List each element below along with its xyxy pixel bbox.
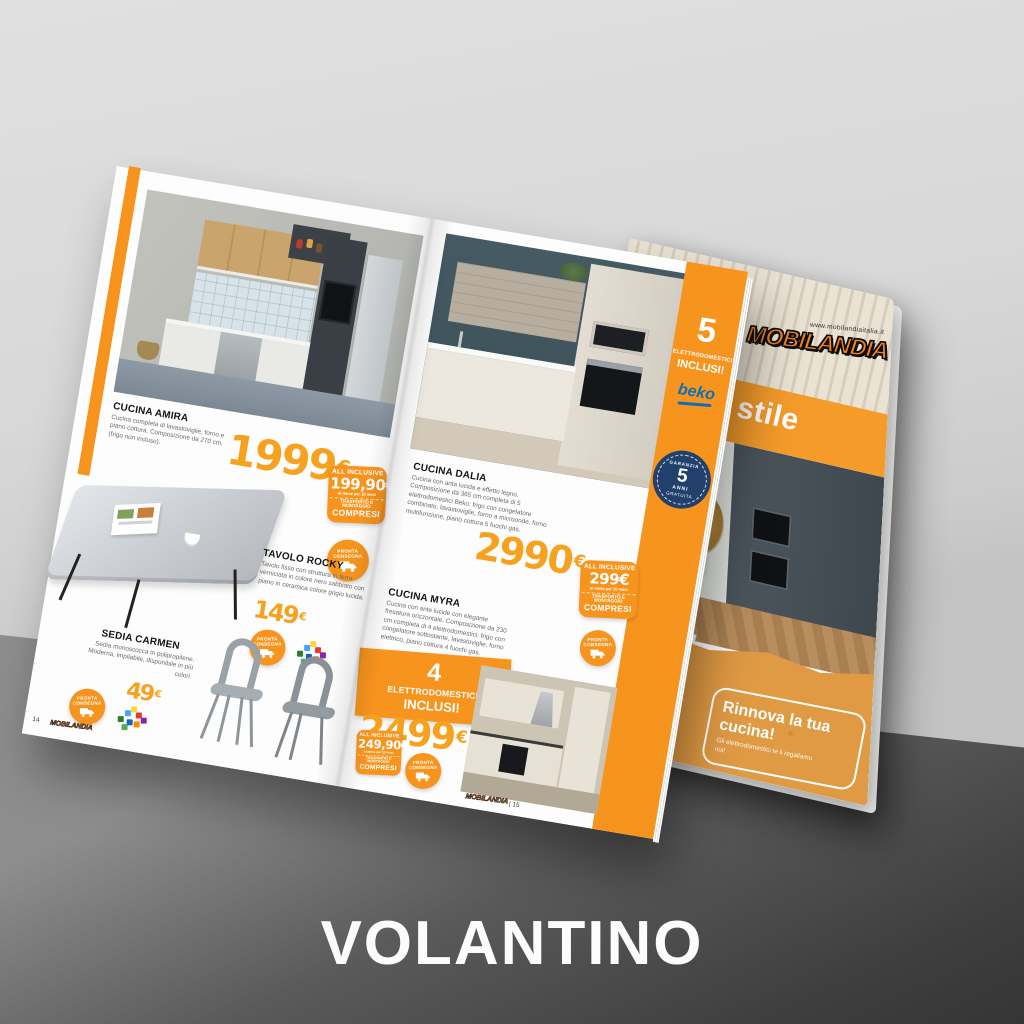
magazine-on-table bbox=[111, 503, 161, 535]
cucina-dalia-photo bbox=[410, 233, 685, 488]
myra-oven-icon bbox=[498, 744, 528, 776]
page-number-right: | 15 bbox=[508, 801, 520, 810]
cucina-myra-photo bbox=[460, 665, 617, 814]
beko-logo: beko bbox=[677, 382, 716, 404]
table-top bbox=[44, 485, 287, 585]
tavolo-rocky-photo bbox=[31, 452, 293, 657]
open-catalog-spread: CUCINA AMIRA Cucina completa di lavastov… bbox=[22, 166, 748, 839]
amira-basket bbox=[135, 340, 160, 361]
sidebar-count: 5 bbox=[695, 312, 719, 349]
cucina-amira-photo bbox=[114, 189, 424, 437]
mockup-caption: VOLANTINO bbox=[0, 908, 1024, 979]
price-dalia: 2990€ bbox=[472, 527, 588, 583]
sedia-carmen-photo bbox=[187, 632, 359, 771]
truck-icon bbox=[79, 707, 95, 718]
all-inclusive-badge-amira: ALL INCLUSIVE 199,90€ al mese per 10 mes… bbox=[327, 465, 387, 524]
amira-oven-icon bbox=[318, 280, 356, 325]
pronta-consegna-badge: PRONTA CONSEGNA bbox=[405, 753, 441, 789]
all-inclusive-badge-dalia: ALL INCLUSIVE 299€ al mese per 10 mesi T… bbox=[579, 560, 639, 619]
dalia-oven-icon bbox=[580, 358, 643, 415]
truck-icon bbox=[590, 648, 606, 659]
price-carmen: 49€ bbox=[125, 680, 164, 708]
pronta-consegna-badge: PRONTA CONSEGNA bbox=[69, 688, 105, 724]
allinc-compresi: COMPRESI bbox=[329, 508, 383, 520]
color-swatches-icon bbox=[117, 706, 148, 733]
page-number-left: 14 bbox=[32, 716, 40, 724]
warranty-badge: GARANZIA 5 ANNI GRATUITA bbox=[648, 446, 715, 513]
truck-icon bbox=[415, 771, 431, 782]
dalia-faucet bbox=[458, 331, 464, 347]
all-inclusive-badge-myra: ALL INCLUSIVE 249,90€ al mese per 10 mes… bbox=[355, 730, 402, 776]
pronta-consegna-badge: PRONTA CONSEGNA bbox=[580, 630, 616, 666]
